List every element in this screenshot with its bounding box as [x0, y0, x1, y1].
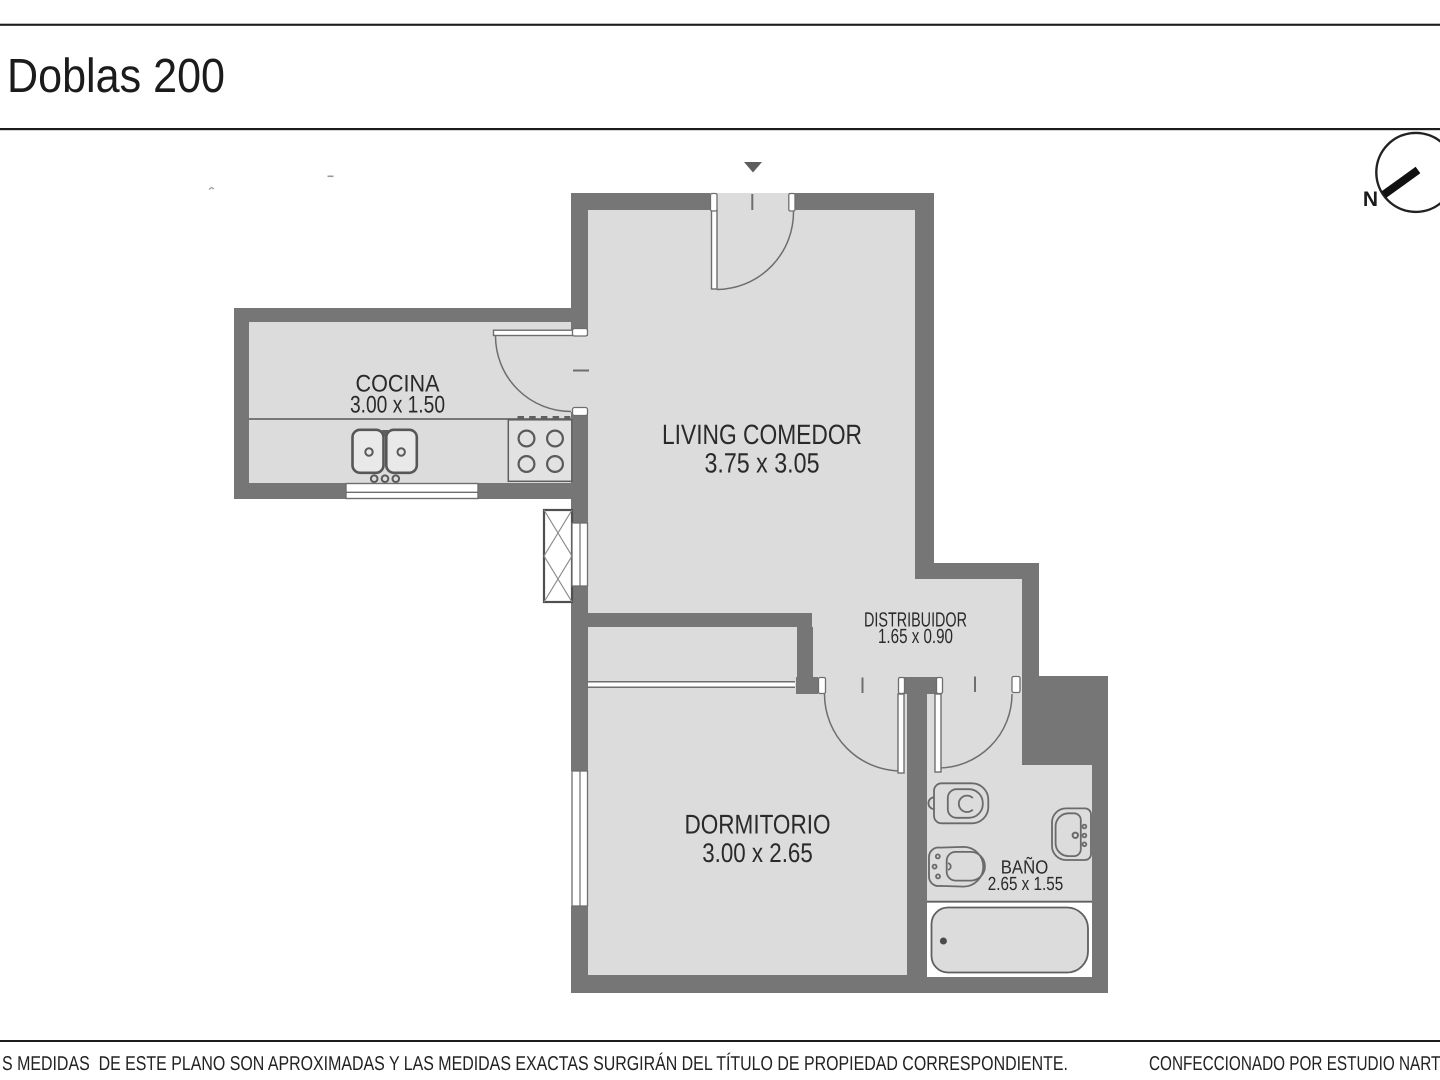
svg-text:3.00 x 2.65: 3.00 x 2.65	[702, 838, 813, 868]
svg-text:CONFECCIONADO POR ESTUDIO NART: CONFECCIONADO POR ESTUDIO NARTIZ	[1149, 1053, 1440, 1075]
svg-text:1.65 x 0.90: 1.65 x 0.90	[878, 625, 953, 648]
svg-text:3.75 x 3.05: 3.75 x 3.05	[705, 448, 820, 479]
svg-text:S MEDIDAS DE ESTE PLANO SON A: S MEDIDAS DE ESTE PLANO SON APROXIMADAS …	[2, 1052, 1068, 1075]
svg-text:2.65 x 1.55: 2.65 x 1.55	[988, 874, 1064, 895]
svg-text:DORMITORIO: DORMITORIO	[685, 810, 831, 840]
svg-text:Doblas 200: Doblas 200	[7, 50, 225, 103]
svg-text:N: N	[1363, 188, 1378, 211]
svg-text:LIVING COMEDOR: LIVING COMEDOR	[662, 419, 862, 450]
svg-text:3.00 x 1.50: 3.00 x 1.50	[350, 391, 445, 418]
